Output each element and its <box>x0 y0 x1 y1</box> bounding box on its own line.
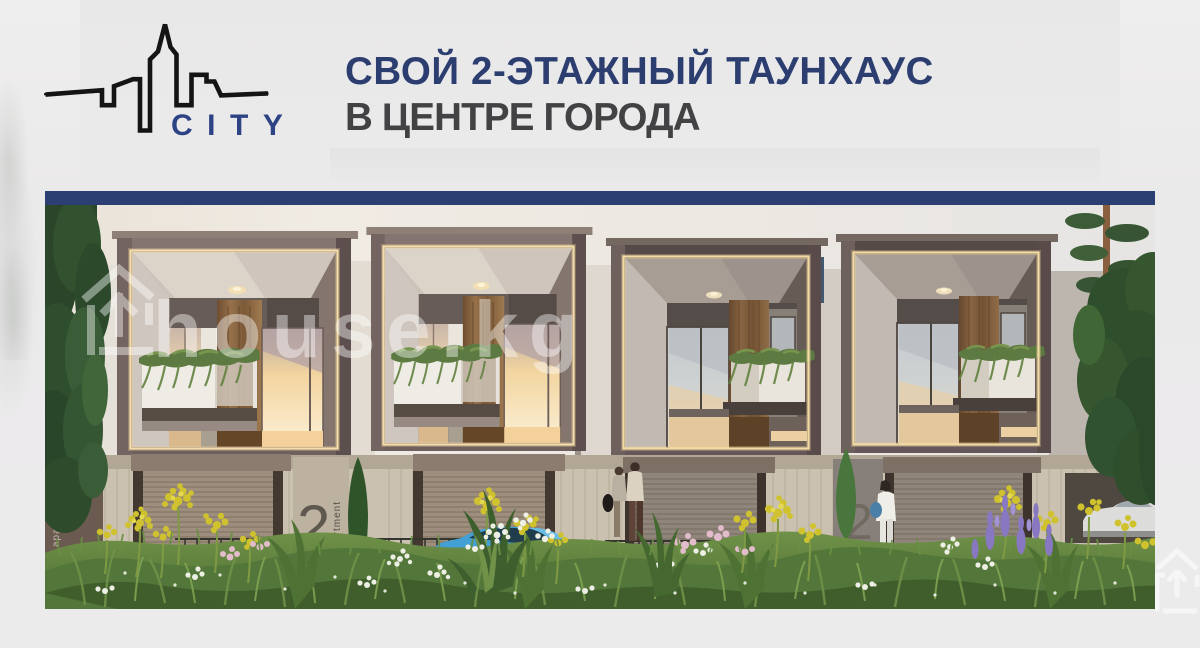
svg-text:CITY: CITY <box>171 109 297 142</box>
svg-text:house.kg: house.kg <box>153 285 588 374</box>
